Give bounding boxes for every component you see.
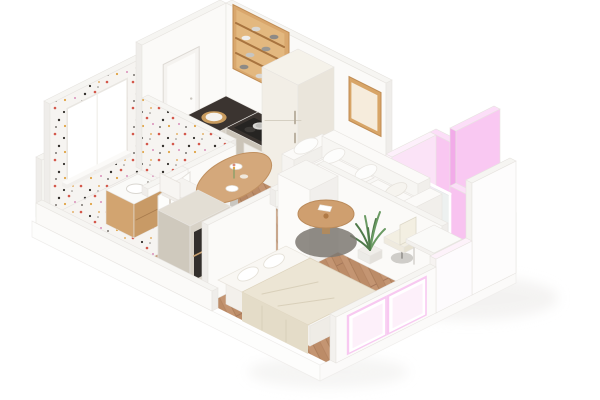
apartment-isometric-scene [0, 0, 600, 400]
floorplan-3d-render [0, 0, 600, 400]
